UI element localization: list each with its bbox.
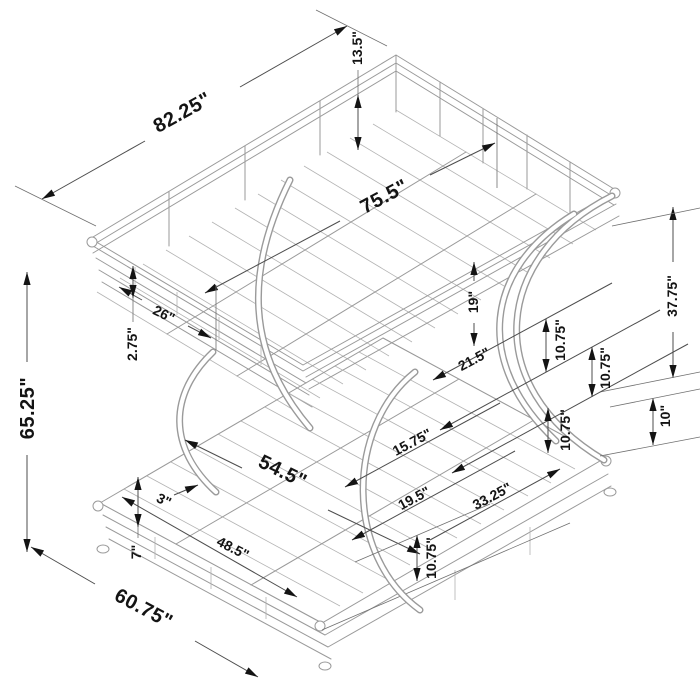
- dimension-label-upper-bunk-height: 37.75": [664, 275, 680, 317]
- dimension-overall-length: 82.25": [15, 10, 387, 226]
- bottom-bunk-panel-ties: [155, 527, 530, 619]
- dimension-label-rail-thickness: 2.75": [124, 327, 140, 361]
- dimension-label-overall-length: 82.25": [150, 88, 215, 138]
- dimension-label-overall-height: 65.25": [17, 377, 39, 440]
- dimension-upper-rail-span: 21.5": [455, 344, 492, 374]
- dimension-label-lower-front-clearance: 10.75": [423, 537, 439, 579]
- dimension-lower-front-rail-length: 48.5": [122, 497, 297, 597]
- dimension-label-upper-side-rail-height: 19": [465, 291, 481, 313]
- bottom-bunk-tube-end-left: [93, 501, 103, 511]
- top-bunk-side-panel: [96, 204, 619, 407]
- dimension-lower-side-span: 33.25": [430, 469, 560, 540]
- dimension-label-right-base-height: 10": [657, 405, 673, 427]
- dimension-diagram: 82.25" 13.5" 75.5" 37.75" 19" 1: [0, 0, 700, 700]
- top-bunk-tube-end-left: [87, 237, 97, 247]
- dimension-guardrail-height: 13.5": [349, 31, 365, 150]
- dimension-label-lower-side-span: 33.25": [470, 479, 514, 513]
- dimension-right-base-height: 10": [600, 389, 700, 456]
- top-bunk-front-rails: [93, 192, 614, 371]
- dimension-label-arc-rung-span-1: 15.75": [390, 425, 434, 459]
- dimension-slat-spacing: 3": [154, 485, 198, 510]
- dimension-label-guardrail-height: 13.5": [349, 31, 365, 65]
- bottom-bunk-front-faces: [103, 474, 611, 659]
- dimension-label-overall-width: 60.75": [111, 584, 177, 633]
- dimension-overall-height: 65.25": [17, 272, 39, 552]
- dimension-overall-width: 60.75": [31, 547, 258, 677]
- dimension-label-lower-rail-height: 7": [128, 545, 144, 559]
- caster-left: [97, 545, 109, 553]
- dimension-rail-thickness: 2.75": [124, 266, 140, 361]
- dimension-annotations: 82.25" 13.5" 75.5" 37.75" 19" 1: [15, 10, 700, 677]
- dimension-lower-rail-height: 7": [128, 477, 144, 559]
- bunk-bed-drawing: 82.25" 13.5" 75.5" 37.75" 19" 1: [0, 0, 700, 700]
- dimension-label-upper-sleep-length: 75.5": [357, 175, 412, 218]
- top-bunk-support-rails: [167, 152, 536, 376]
- dimension-label-upper-rail-span: 21.5": [455, 344, 492, 374]
- bed-line-art: [87, 55, 620, 670]
- dimension-label-upper-arc-gap-2: 10.75": [597, 347, 613, 389]
- caster-right: [604, 488, 616, 496]
- dimension-label-lower-sleep-width: 54.5": [255, 451, 310, 493]
- dimension-label-lower-front-rail-length: 48.5": [214, 533, 251, 563]
- top-bunk-guardrail-posts: [169, 82, 570, 246]
- dimension-label-lower-right-rail-gap: 10.75": [557, 409, 573, 451]
- ground-line: [322, 523, 570, 630]
- dimension-label-upper-panel-length: 26": [151, 302, 178, 326]
- dimension-upper-side-rail-height: 19": [465, 262, 481, 346]
- dimension-label-upper-arc-gap-1: 10.75": [552, 319, 568, 361]
- caster-front: [319, 662, 331, 670]
